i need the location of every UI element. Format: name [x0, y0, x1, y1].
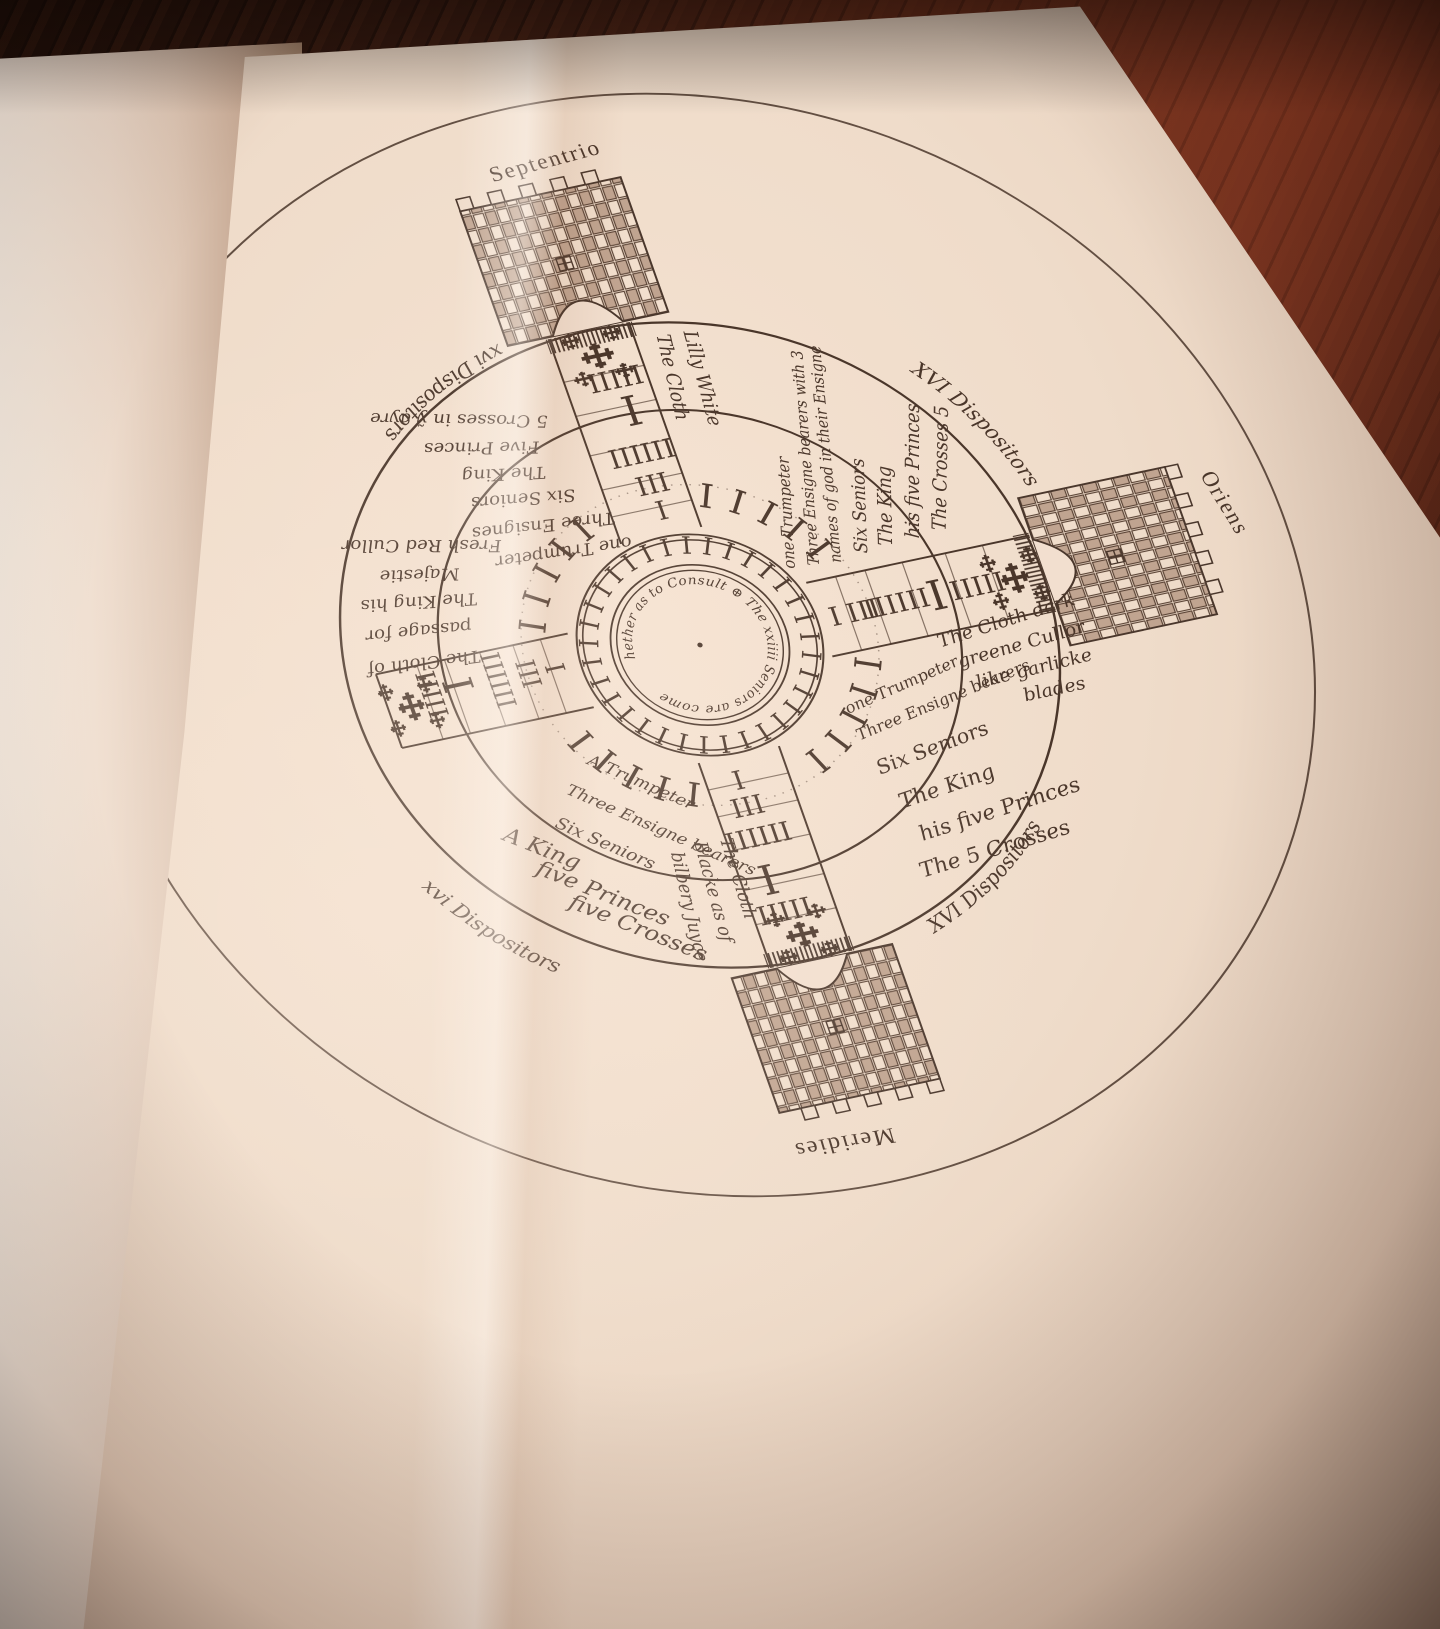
- svg-text:IIIIII: IIIIII: [631, 453, 872, 656]
- svg-text:greene Cullor: greene Cullor: [954, 617, 1090, 672]
- svg-text:III: III: [632, 468, 675, 503]
- svg-text:III: III: [726, 787, 769, 822]
- svg-text:III: III: [842, 594, 885, 629]
- svg-text:xvi Dispositors: xvi Dispositors: [357, 338, 530, 449]
- svg-text:The Cloth of: The Cloth of: [362, 646, 483, 680]
- company-list-southwest: A Trumpeter Three Ensigne bearers Six Se…: [473, 725, 789, 999]
- svg-text:I: I: [539, 660, 572, 676]
- north-arm: I III IIIIII I IIIII: [456, 165, 741, 552]
- svg-text:Six Seniors: Six Seniors: [848, 458, 873, 554]
- center-dot: [697, 642, 704, 648]
- svg-text:A King: A King: [498, 822, 585, 875]
- svg-text:The Cloth dark: The Cloth dark: [934, 590, 1078, 652]
- svg-text:I: I: [652, 496, 673, 527]
- svg-text:five Crosses: five Crosses: [564, 889, 711, 967]
- west-arm: I III IIIIII I IIIII: [372, 634, 594, 749]
- svg-text:one Trumpeter: one Trumpeter: [841, 652, 964, 718]
- dotted-construction-circle: [474, 453, 925, 838]
- photo-scene: IIIIIIIIIIIIIIIIIIIIIIIIIIIIIIIIIIII het…: [0, 0, 1440, 1629]
- svg-text:I: I: [727, 763, 748, 794]
- outer-circle: [246, 258, 1153, 1032]
- svg-text:The King: The King: [874, 465, 898, 546]
- svg-text:IIIIII: IIIIII: [474, 649, 524, 711]
- svg-text:IIIIII: IIIIII: [521, 613, 769, 838]
- svg-text:The King: The King: [460, 462, 547, 485]
- company-list-northeast: one Trumpeter Three Ensigne bearers with…: [709, 321, 997, 577]
- svg-text:Three Ensigne bearers: Three Ensigne bearers: [564, 781, 759, 879]
- svg-text:bilbery Juyce: bilbery Juyce: [666, 851, 712, 962]
- svg-text:IIIIII: IIIIII: [860, 583, 935, 625]
- svg-text:Five Princes: Five Princes: [423, 437, 542, 458]
- central-hub: IIIIIIIIIIIIIIIIIIIIIIIIIIIIIIIIIIII het…: [539, 508, 860, 782]
- svg-text:I: I: [921, 571, 954, 621]
- company-list-southeast: one Trumpeter Three Ensigne bearers Six …: [832, 636, 1102, 887]
- svg-text:xvi Dispositors: xvi Dispositors: [414, 855, 571, 999]
- label-oriens: Oriens: [1195, 467, 1256, 538]
- dispositor-labels: XVI Dispositors XVI Dispositors xvi Disp…: [241, 241, 1188, 1038]
- svg-text:I: I: [751, 853, 784, 903]
- south-arm: I III IIIIII I IIIII: [659, 738, 944, 1125]
- seniors-ring: IIIIII IIIIII IIIIII IIIIII: [474, 452, 925, 837]
- svg-text:I: I: [825, 602, 846, 633]
- label-meridies: Meridies: [790, 1122, 898, 1162]
- svg-text:Three Ensignes: Three Ensignes: [470, 507, 617, 542]
- east-arm: I III IIIIII I IIIII: [793, 464, 1230, 693]
- svg-text:one Trumpeter: one Trumpeter: [491, 532, 634, 571]
- svg-text:names of god in their Ensigne: names of god in their Ensigne: [805, 345, 845, 562]
- svg-text:Three Ensigne bearers with 3: Three Ensigne bearers with 3: [788, 350, 824, 565]
- svg-text:The Crosses 5: The Crosses 5: [929, 405, 954, 532]
- svg-text:IIIII: IIIII: [752, 890, 816, 930]
- svg-text:I: I: [616, 387, 649, 437]
- cloth-labels: The Cloth Lilly White The Cloth dark gre…: [273, 270, 1170, 1009]
- svg-text:Lilly White: Lilly White: [678, 328, 726, 427]
- svg-text:Blacke as of: Blacke as of: [689, 839, 738, 946]
- svg-text:The 5 Crosses: The 5 Crosses: [915, 816, 1074, 883]
- svg-text:The Cloth: The Cloth: [715, 836, 761, 920]
- svg-text:Fresh Red Cullor: Fresh Red Cullor: [339, 535, 503, 554]
- svg-text:The King his: The King his: [359, 588, 479, 614]
- svg-text:one Trumpeter: one Trumpeter: [774, 455, 800, 569]
- svg-text:his five Princes: his five Princes: [915, 773, 1085, 846]
- svg-text:I: I: [435, 673, 485, 697]
- svg-text:IIIIII: IIIIII: [720, 814, 795, 856]
- svg-text:blades: blades: [1020, 674, 1088, 706]
- svg-text:five Princes: five Princes: [531, 855, 674, 931]
- inner-circle: [370, 363, 1031, 927]
- svg-text:III: III: [509, 657, 549, 691]
- svg-text:XVI Dispositors: XVI Dispositors: [893, 812, 1074, 940]
- svg-text:his five Princes: his five Princes: [902, 403, 924, 539]
- svg-text:Six Seniors: Six Seniors: [552, 814, 658, 874]
- svg-text:A Trumpeter: A Trumpeter: [583, 750, 699, 813]
- svg-text:XVI Dispositors: XVI Dispositors: [901, 340, 1047, 505]
- hub-tally-ring: IIIIIIIIIIIIIIIIIIIIIIIIIIIIIIIIIIII: [539, 508, 860, 782]
- svg-text:The King: The King: [895, 760, 1000, 814]
- svg-text:IIIII: IIIII: [946, 567, 1010, 607]
- svg-text:IIIIII: IIIIII: [475, 487, 717, 689]
- svg-text:The Cloth: The Cloth: [651, 333, 693, 421]
- svg-text:Three Ensigne bearers: Three Ensigne bearers: [852, 656, 1034, 744]
- svg-text:IIIIII: IIIIII: [605, 434, 680, 476]
- svg-text:Six Seniors: Six Seniors: [469, 485, 577, 512]
- svg-text:passage for: passage for: [362, 616, 474, 645]
- company-list-northwest: 5 Crosses in ỹ ayre Five Princes The Kin…: [364, 366, 635, 595]
- svg-text:Six Seniors: Six Seniors: [871, 716, 993, 779]
- hub-motto: hether as to Consult ⊕ The xxiiii Senior…: [600, 559, 801, 730]
- svg-text:5 Crosses in ỹ ayre: 5 Crosses in ỹ ayre: [369, 408, 548, 430]
- svg-text:IIIII: IIIII: [409, 668, 455, 720]
- svg-text:Majestie: Majestie: [378, 564, 461, 585]
- svg-text:IIIII: IIIII: [584, 360, 648, 400]
- svg-text:like garlicke: like garlicke: [973, 645, 1096, 693]
- svg-text:IIIIII: IIIIII: [676, 579, 925, 803]
- label-septentrio: Septentrio: [485, 135, 604, 187]
